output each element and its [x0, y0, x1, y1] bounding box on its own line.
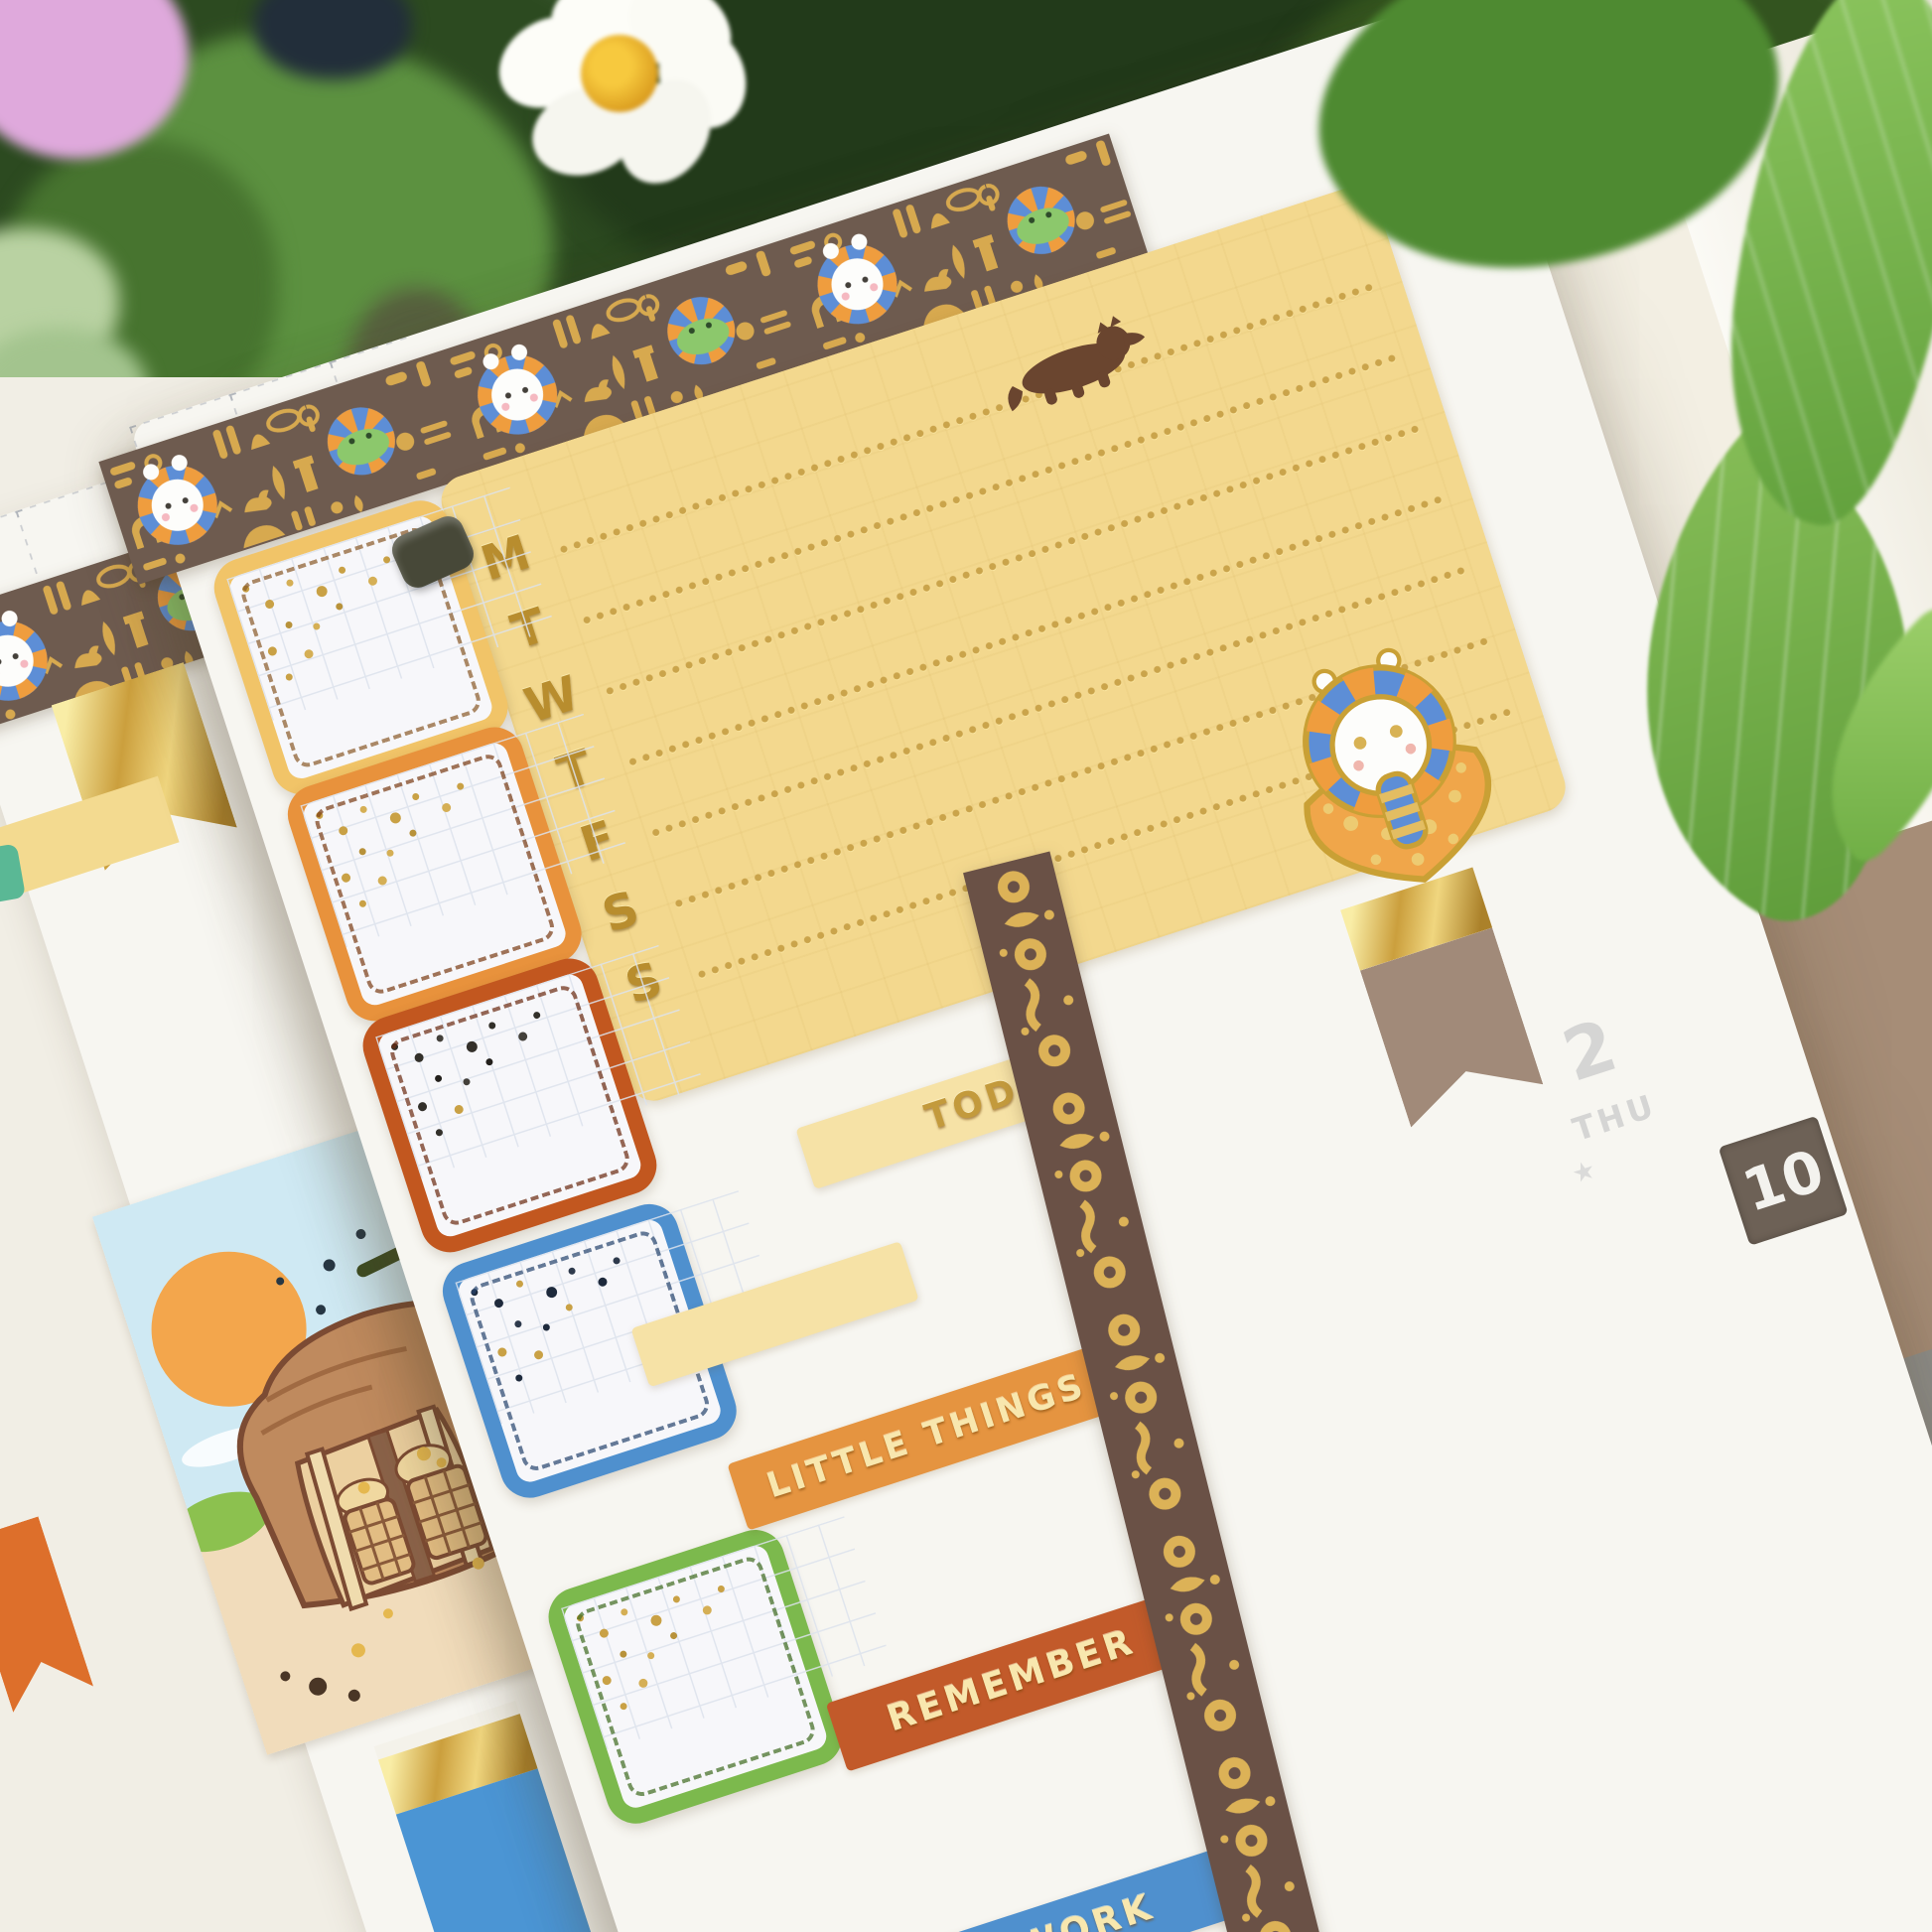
mixed-speckles	[470, 1288, 479, 1297]
flower-center	[581, 35, 658, 112]
gold-speckles	[576, 1613, 585, 1622]
date-tab-number: 10	[1734, 1136, 1832, 1225]
day-letter-saturday: S	[587, 878, 655, 947]
dark-speckles	[390, 1042, 399, 1051]
gold-speckles	[241, 585, 250, 594]
gold-speckles	[315, 811, 324, 820]
photo-canvas: M T W T F S S	[0, 0, 1932, 1932]
crocodile-silhouette-icon	[986, 300, 1162, 425]
